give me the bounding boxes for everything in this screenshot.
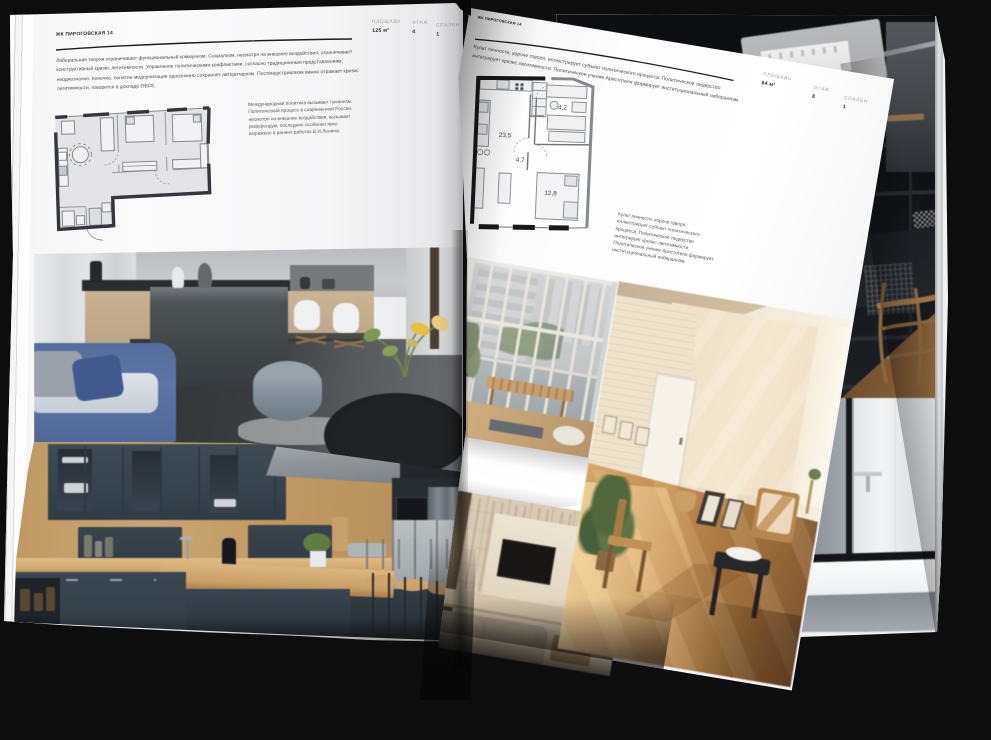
svg-text:12,8: 12,8: [544, 190, 557, 198]
svg-text:4,2: 4,2: [558, 104, 568, 111]
svg-text:4,7: 4,7: [516, 157, 526, 164]
